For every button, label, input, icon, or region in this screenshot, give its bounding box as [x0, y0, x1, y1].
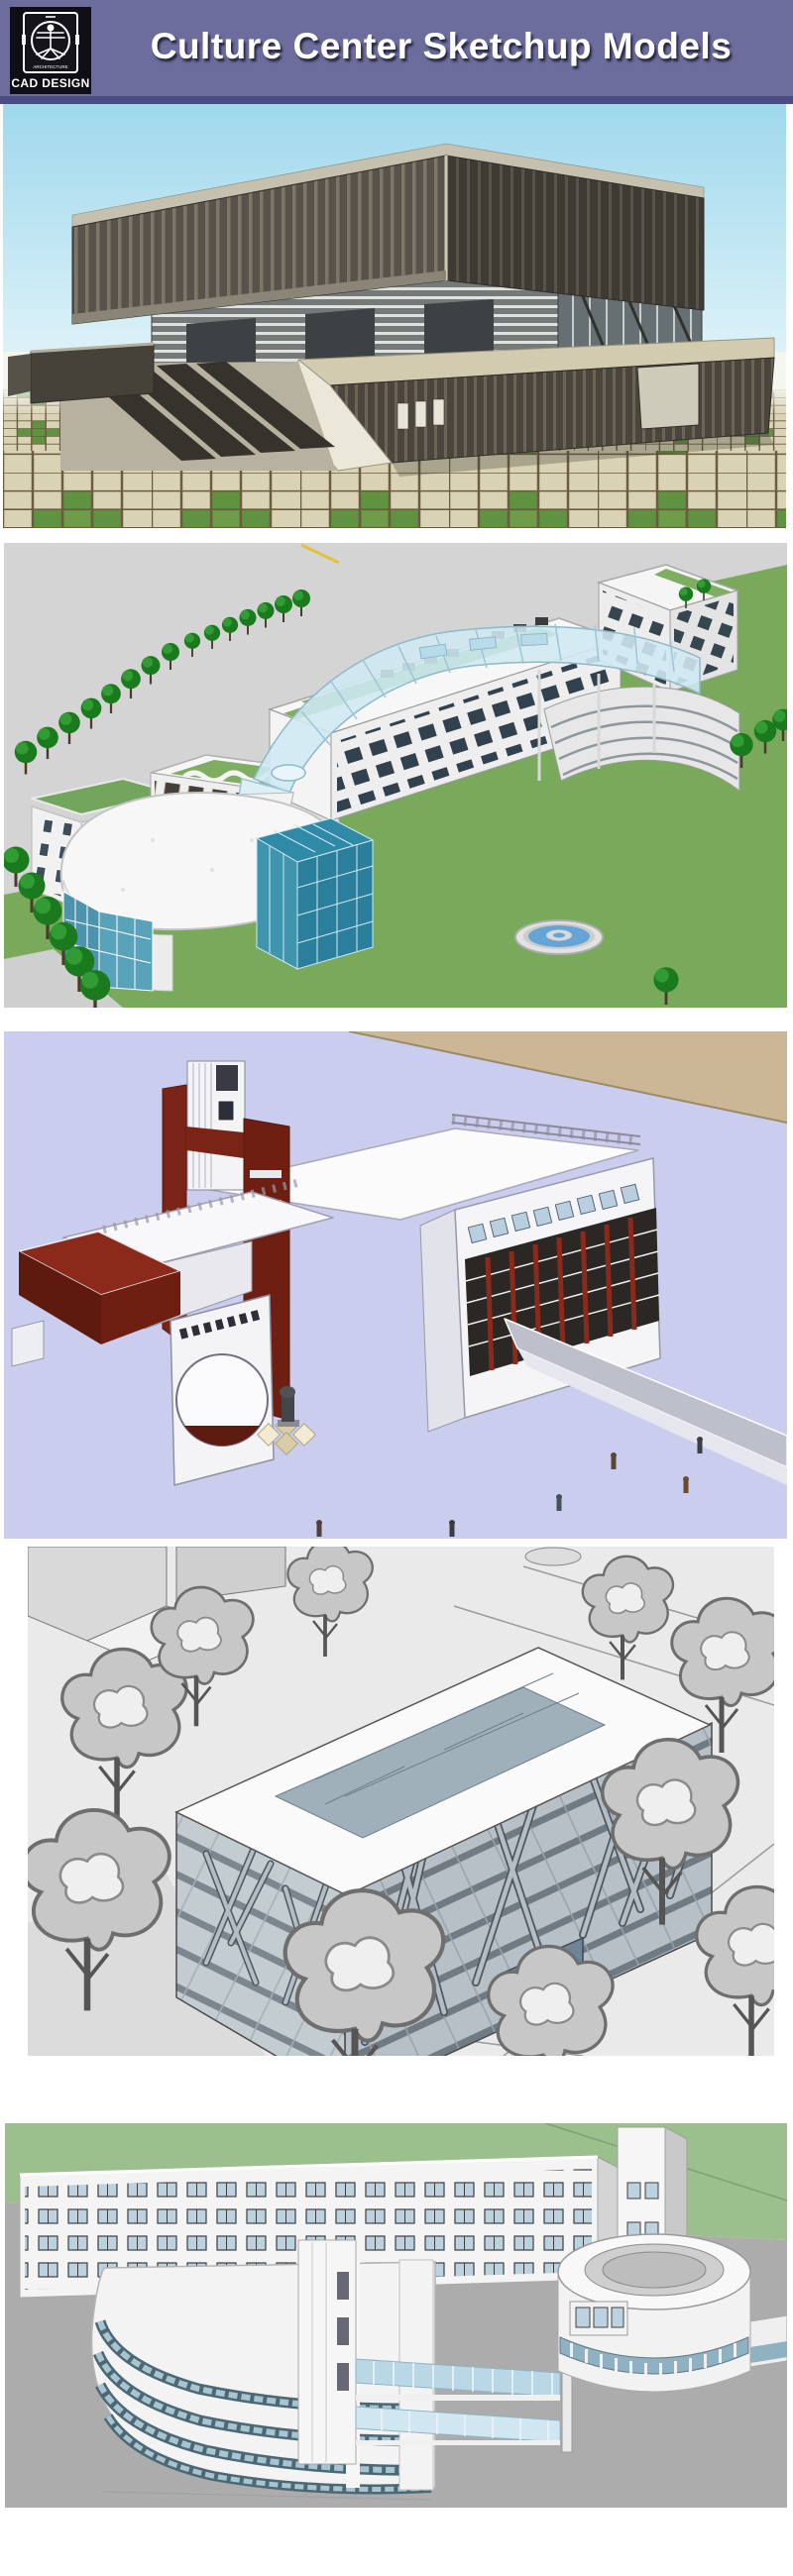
entry-doors	[397, 399, 444, 429]
glass-atrium-box	[257, 818, 373, 969]
render-image-4	[28, 1547, 774, 2056]
fountain	[515, 920, 603, 954]
render-image-5	[5, 2123, 787, 2508]
header-accent-strip	[0, 96, 793, 104]
round-hall	[558, 2234, 750, 2392]
vitruvian-man-icon: ARCHITECTURE	[10, 7, 91, 78]
render-image-1	[3, 104, 786, 528]
logo-caption: ARCHITECTURE	[33, 64, 67, 69]
logo-text: CAD DESIGN	[10, 76, 91, 90]
poster: ARCHITECTURE CAD DESIGN Culture Center S…	[0, 0, 793, 2576]
pond	[525, 1548, 581, 1565]
render-image-3	[4, 1031, 787, 1539]
header-bar: ARCHITECTURE CAD DESIGN Culture Center S…	[0, 0, 793, 96]
cad-design-logo: ARCHITECTURE CAD DESIGN	[10, 7, 91, 94]
render-image-2	[4, 543, 787, 1008]
page-title: Culture Center Sketchup Models	[94, 26, 788, 67]
